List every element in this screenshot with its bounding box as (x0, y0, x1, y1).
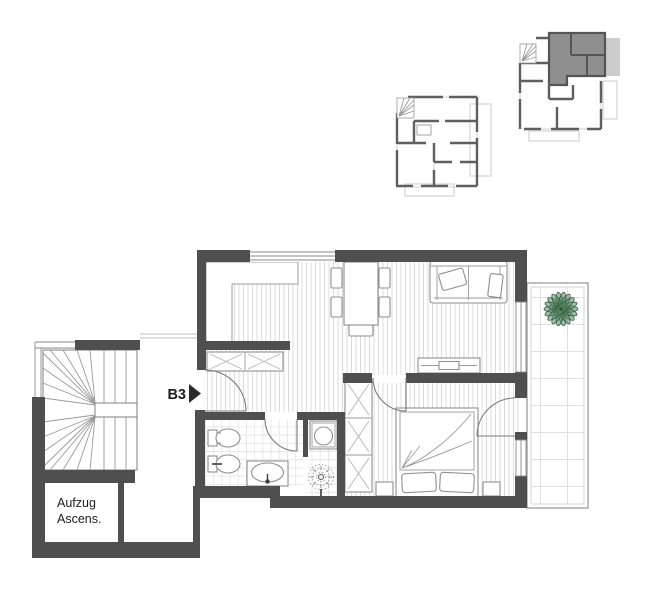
toilet-icon (208, 429, 240, 447)
wardrobe-icon (345, 381, 372, 492)
elevator-label-line1: Aufzug (57, 496, 96, 510)
terrace (527, 283, 588, 508)
elevator-label-line2: Ascens. (57, 512, 101, 526)
unit-label: B3 (167, 387, 186, 403)
bidet-icon (208, 455, 240, 473)
tv-sideboard-icon (418, 358, 480, 373)
balcony-outline (603, 81, 617, 119)
washing-machine-icon (310, 421, 337, 449)
nightstand-icon (483, 482, 500, 496)
living-terrace-window (516, 302, 526, 372)
overview-plan-other-floor (396, 97, 491, 196)
stair-landing (95, 403, 137, 417)
floor-plan-drawing: B3 Aufzug Ascens. (0, 0, 668, 600)
living-top-window (250, 250, 335, 262)
wardrobe-icon (207, 352, 283, 371)
nightstand-icon (376, 482, 393, 496)
balcony-outline (529, 131, 579, 141)
entrance-arrow-icon (189, 384, 201, 403)
landing-parapet (140, 334, 197, 338)
staircase-icon (43, 350, 137, 470)
mini-room-detail (417, 125, 431, 135)
unit-terrace-highlight (605, 38, 620, 76)
washbasin-icon (247, 461, 288, 486)
floor-plan-page: B3 Aufzug Ascens. (0, 0, 668, 600)
overview-plan-current-floor (520, 33, 620, 141)
unit-highlight (549, 33, 605, 85)
sofa-icon (430, 261, 507, 303)
balcony-outline (470, 104, 491, 176)
bedroom-window (516, 440, 526, 476)
